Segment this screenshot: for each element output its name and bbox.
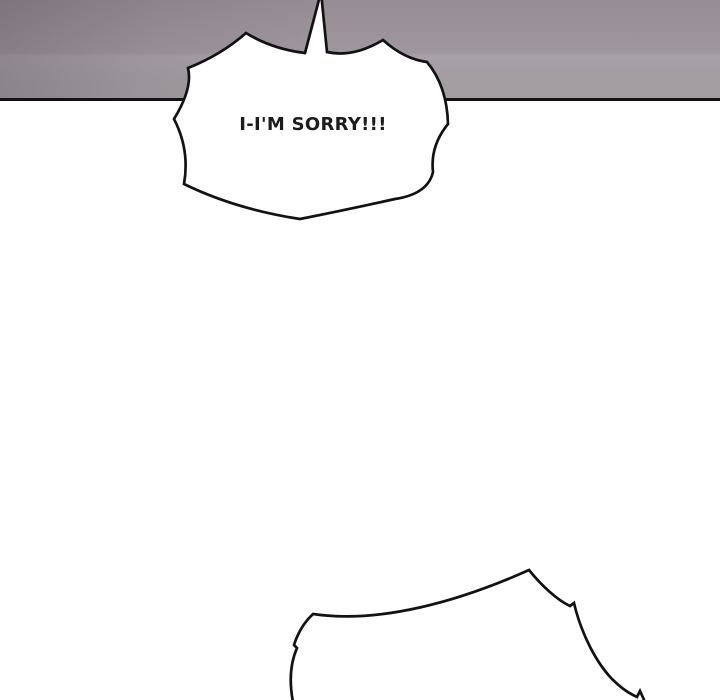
burst-speech-bubble: [174, 0, 448, 219]
speech-bubble-text: I-I'M SORRY!!!: [227, 114, 399, 136]
bottom-burst-outline: [291, 570, 645, 700]
comic-panel: I-I'M SORRY!!!: [0, 0, 720, 700]
panel-artwork: [0, 0, 720, 700]
